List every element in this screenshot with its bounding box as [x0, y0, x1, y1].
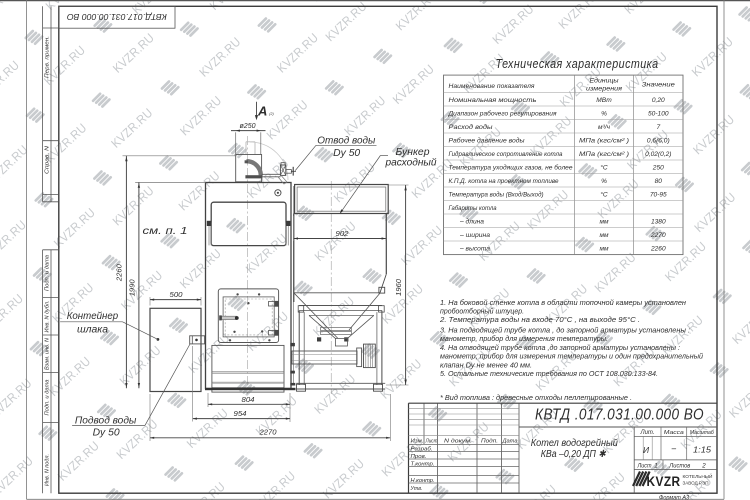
svg-text:Масштаб: Масштаб: [690, 430, 715, 436]
svg-text:– ширина: – ширина: [459, 232, 490, 239]
svg-text:* Вид топлива : древесные от: * Вид топлива : древесные отходы пеллети…: [440, 393, 632, 402]
svg-text:1: 1: [654, 462, 657, 469]
svg-text:Подвод воды: Подвод воды: [75, 416, 137, 427]
svg-text:–: –: [671, 444, 677, 453]
svg-text:Пров.: Пров.: [411, 454, 427, 460]
svg-text:И: И: [643, 445, 650, 455]
svg-text:МВт: МВт: [596, 97, 612, 104]
svg-text:мм: мм: [599, 232, 609, 239]
svg-text:°С: °С: [600, 191, 608, 199]
svg-text:2. Температура воды на входе: 2. Температура воды на входе 70°С , на в…: [439, 315, 640, 324]
svg-text:250: 250: [652, 165, 664, 172]
svg-text:Справ. N: Справ. N: [45, 146, 51, 174]
svg-text:ЗАВОД РЭП: ЗАВОД РЭП: [683, 480, 709, 485]
svg-text:1960: 1960: [396, 279, 403, 296]
svg-text:Бункер: Бункер: [396, 147, 430, 158]
svg-text:1990: 1990: [130, 279, 137, 296]
svg-text:2260: 2260: [650, 246, 666, 253]
svg-text:Масса: Масса: [664, 430, 685, 436]
svg-text:мм: мм: [599, 246, 609, 253]
svg-text:Т.контр.: Т.контр.: [411, 461, 435, 467]
svg-text:4. На отводящей трубе котла ,: 4. На отводящей трубе котла ,до запорной…: [440, 343, 680, 352]
svg-text:%: %: [601, 178, 607, 185]
svg-text:1:15: 1:15: [693, 445, 711, 455]
svg-text:Техническая характеристика: Техническая характеристика: [496, 57, 659, 71]
svg-text:Подп. и дата: Подп. и дата: [45, 255, 51, 291]
svg-text:Инв. N дубл.: Инв. N дубл.: [45, 301, 51, 333]
svg-text:50-100: 50-100: [648, 111, 669, 118]
svg-text:Формат А3: Формат А3: [659, 496, 690, 500]
svg-text:КВа –0,20 ДП ✱: КВа –0,20 ДП ✱: [541, 449, 607, 460]
svg-text:N докум.: N докум.: [444, 438, 472, 444]
svg-text:(2): (2): [269, 112, 273, 116]
svg-text:7: 7: [656, 124, 660, 131]
svg-text:Дата: Дата: [501, 438, 517, 444]
svg-text:КВТД .017.031.00.000 ВО: КВТД .017.031.00.000 ВО: [535, 407, 704, 424]
svg-text:Габариты котла: Габариты котла: [449, 204, 497, 212]
svg-text:см. п. 1: см. п. 1: [143, 225, 188, 237]
svg-text:2270: 2270: [258, 430, 276, 437]
svg-text:Инв. N подл.: Инв. N подл.: [45, 454, 51, 486]
svg-text:Наименование показателя: Наименование показателя: [449, 83, 535, 90]
svg-text:Перв. примен.: Перв. примен.: [45, 36, 51, 78]
svg-text:902: 902: [336, 231, 349, 238]
svg-text:°С: °С: [600, 164, 608, 172]
svg-text:Номинальная мощность: Номинальная мощность: [449, 97, 538, 104]
svg-text:Температура воды (Вход/Выход): Температура воды (Вход/Выход): [449, 191, 544, 199]
svg-text:Единицы: Единицы: [590, 77, 619, 85]
svg-text:3. На подводящей трубе котла: 3. На подводящей трубе котла , до запорн…: [440, 325, 690, 334]
svg-text:2: 2: [701, 462, 706, 469]
svg-text:Лист: Лист: [637, 462, 652, 469]
svg-text:расходный: расходный: [384, 158, 436, 169]
svg-text:2270: 2270: [650, 232, 666, 239]
svg-text:Dy 50: Dy 50: [93, 428, 120, 439]
svg-text:KVZR: KVZR: [647, 474, 681, 489]
svg-text:Н.контр.: Н.контр.: [411, 478, 435, 484]
svg-text:1380: 1380: [651, 219, 666, 226]
svg-text:%: %: [601, 111, 607, 118]
svg-text:Лит.: Лит.: [639, 430, 654, 436]
svg-text:Листов: Листов: [668, 462, 691, 469]
svg-text:0,6(6,0): 0,6(6,0): [647, 138, 670, 145]
svg-text:МПа (кгс/см² ): МПа (кгс/см² ): [579, 138, 629, 145]
svg-text:Изм.: Изм.: [411, 438, 424, 444]
svg-text:м³/ч: м³/ч: [598, 124, 611, 131]
svg-text:шлака: шлака: [77, 324, 108, 335]
svg-text:Диапазон рабочего регулировани: Диапазон рабочего регулирования: [447, 110, 556, 118]
svg-text:5. Остальные технические треб: 5. Остальные технические требования по О…: [440, 369, 658, 378]
svg-text:мм: мм: [599, 219, 609, 226]
svg-text:954: 954: [234, 411, 247, 418]
svg-text:КОТЕЛЬНЫЙ: КОТЕЛЬНЫЙ: [683, 474, 713, 479]
svg-text:Разраб.: Разраб.: [411, 447, 433, 453]
svg-text:70-95: 70-95: [650, 192, 667, 199]
svg-text:Лист: Лист: [425, 438, 438, 444]
svg-text:Расход воды: Расход воды: [449, 123, 493, 131]
svg-text:Dy 50: Dy 50: [333, 148, 360, 159]
svg-text:измерения: измерения: [586, 86, 623, 93]
svg-text:МПа (кгс/см² ): МПа (кгс/см² ): [579, 151, 629, 158]
svg-text:2260: 2260: [117, 264, 124, 282]
svg-text:Контейнер: Контейнер: [67, 311, 119, 322]
svg-text:К.П.Д. котла на проектном топл: К.П.Д. котла на проектном топливе: [449, 178, 559, 185]
svg-text:ø250: ø250: [240, 121, 256, 130]
svg-text:Гидравлическое сопротивление к: Гидравлическое сопротивление котла: [449, 150, 563, 158]
svg-text:– высота: – высота: [459, 246, 490, 253]
svg-text:клапан Dу не менее 40 мм.: клапан Dу не менее 40 мм.: [440, 360, 532, 369]
svg-text:Взам. инв. N: Взам. инв. N: [45, 338, 51, 370]
svg-text:Утв.: Утв.: [410, 486, 423, 492]
svg-text:Температура уходящих газов, не: Температура уходящих газов, не более: [449, 164, 573, 172]
svg-text:Значение: Значение: [642, 82, 675, 89]
svg-text:А: А: [257, 104, 267, 119]
svg-text:804: 804: [242, 397, 255, 404]
svg-text:1. На боковой стенке котла в: 1. На боковой стенке котла в области топ…: [440, 298, 686, 307]
svg-text:80: 80: [655, 178, 663, 185]
svg-text:Подп.: Подп.: [481, 438, 498, 444]
svg-text:Подп. и дата: Подп. и дата: [45, 379, 51, 415]
svg-text:500: 500: [170, 292, 183, 299]
svg-text:Котел водогрейный: Котел водогрейный: [531, 438, 618, 449]
svg-text:0,02(0,2): 0,02(0,2): [645, 151, 671, 158]
svg-text:Рабочее давление воды: Рабочее давление воды: [449, 137, 525, 145]
svg-text:– длина: – длина: [459, 218, 484, 226]
svg-text:манометр, прибор для измерения: манометр, прибор для измерения температу…: [440, 352, 703, 361]
svg-text:КВТД.017.031.00.000 ВО: КВТД.017.031.00.000 ВО: [67, 12, 167, 22]
svg-text:0,20: 0,20: [652, 97, 665, 104]
